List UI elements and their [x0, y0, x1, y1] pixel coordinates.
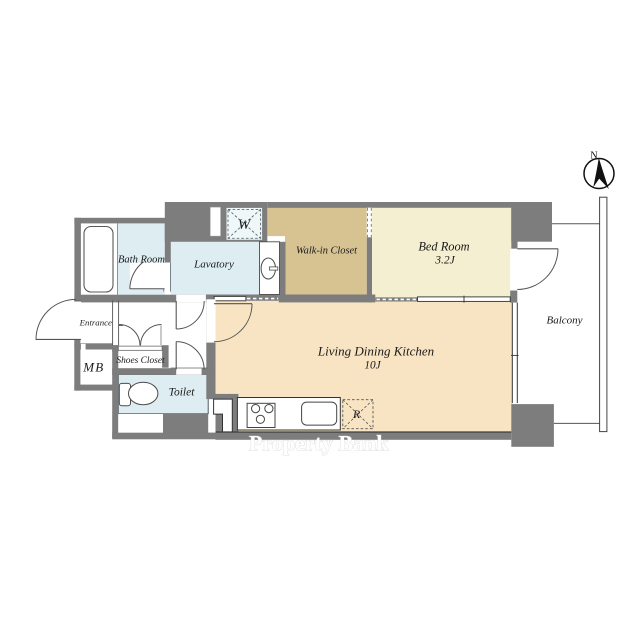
svg-text:Lavatory: Lavatory	[193, 259, 234, 271]
svg-text:Toilet: Toilet	[169, 387, 196, 399]
svg-text:Balcony: Balcony	[546, 315, 582, 327]
svg-text:N: N	[590, 151, 597, 162]
svg-text:Property Bank: Property Bank	[249, 431, 389, 456]
svg-text:R: R	[352, 407, 361, 421]
svg-text:3.2J: 3.2J	[434, 255, 455, 267]
svg-text:Living Dining Kitchen: Living Dining Kitchen	[317, 344, 434, 359]
svg-text:Walk-in Closet: Walk-in Closet	[296, 246, 358, 257]
svg-text:Bath Room: Bath Room	[118, 255, 165, 266]
svg-text:Entrance: Entrance	[79, 318, 112, 328]
svg-text:Shoes Closet: Shoes Closet	[116, 356, 165, 366]
svg-text:W: W	[238, 217, 252, 233]
svg-text:MB: MB	[82, 359, 104, 374]
svg-text:10J: 10J	[364, 360, 381, 372]
svg-text:Bed Room: Bed Room	[418, 240, 469, 254]
